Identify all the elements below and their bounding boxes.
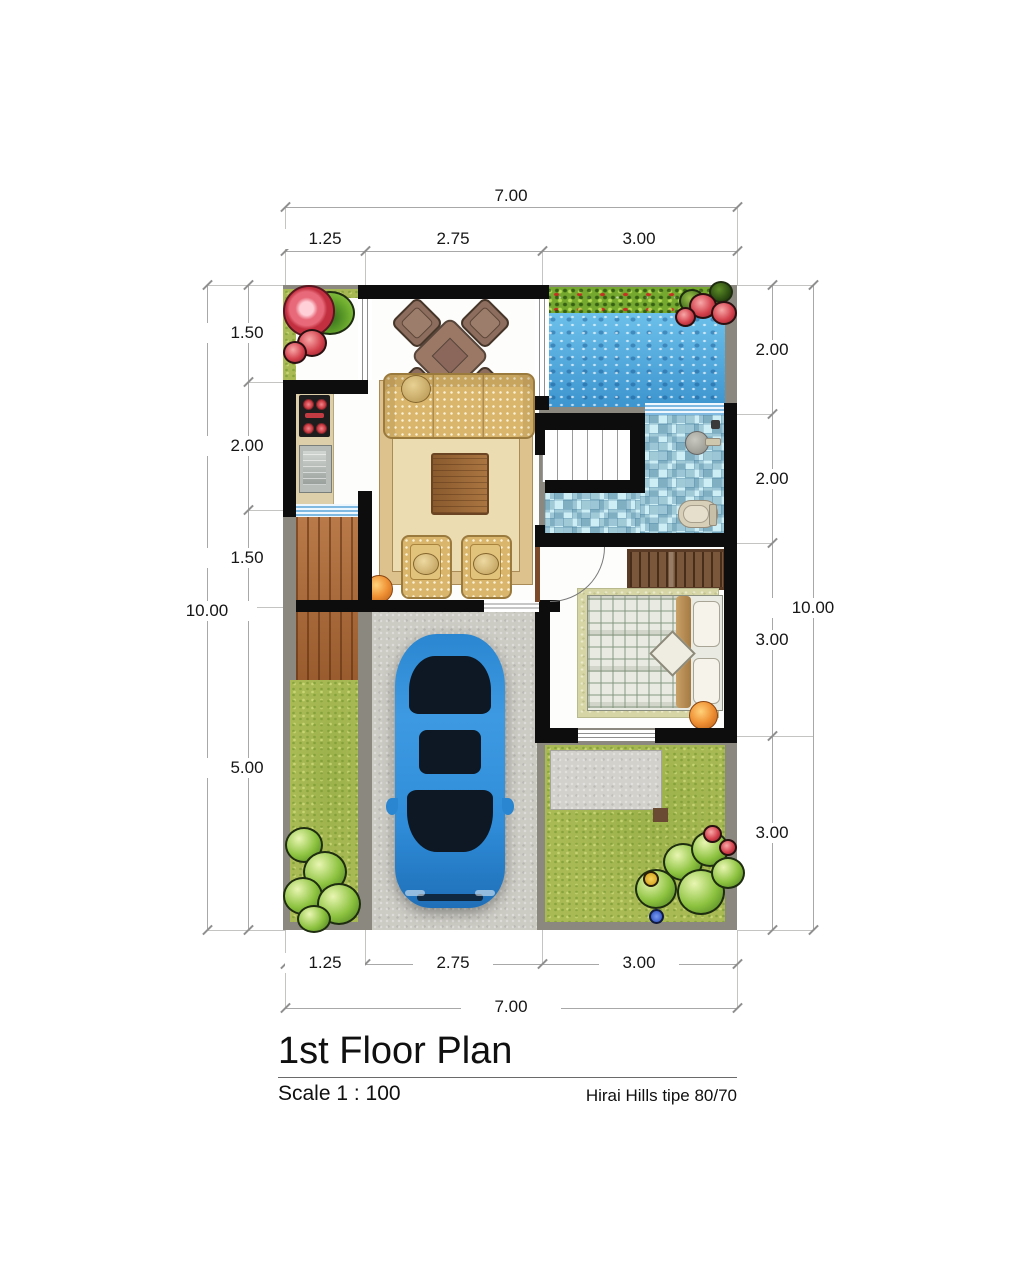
wall bbox=[535, 285, 549, 299]
stepping-stone bbox=[653, 808, 668, 822]
coffee-table bbox=[431, 453, 489, 515]
car bbox=[395, 634, 505, 908]
back-garden-shrubs bbox=[633, 823, 737, 925]
dim-left-seg: 1.50 bbox=[207, 323, 287, 343]
wall bbox=[535, 396, 549, 410]
car-headlight bbox=[405, 890, 425, 896]
wood-deck bbox=[296, 515, 358, 680]
entry-door bbox=[484, 600, 539, 612]
title-divider bbox=[278, 1077, 737, 1078]
flower-icon bbox=[675, 307, 696, 327]
burner-icon bbox=[303, 423, 314, 434]
car-windshield bbox=[407, 790, 493, 852]
armchair bbox=[401, 535, 452, 599]
page-title: 1st Floor Plan bbox=[278, 1030, 512, 1073]
window bbox=[358, 299, 372, 380]
window bbox=[645, 403, 724, 415]
wall bbox=[545, 480, 645, 493]
flower-icon bbox=[703, 825, 722, 843]
stove bbox=[299, 395, 330, 437]
pool-flower-cluster bbox=[675, 285, 737, 337]
car-mirror bbox=[502, 798, 514, 815]
stove-bar bbox=[305, 413, 324, 418]
dim-right-seg: 2.00 bbox=[732, 340, 812, 360]
dim-top-seg: 3.00 bbox=[599, 229, 679, 249]
toilet bbox=[678, 500, 718, 528]
burner-icon bbox=[316, 423, 327, 434]
wall bbox=[535, 525, 545, 547]
flower-icon bbox=[643, 871, 659, 887]
side-garden-shrubs bbox=[283, 825, 368, 930]
window bbox=[296, 504, 358, 517]
wall bbox=[535, 413, 645, 430]
flower-icon bbox=[283, 341, 307, 364]
wall bbox=[545, 533, 724, 547]
wall bbox=[535, 600, 550, 743]
pouf bbox=[689, 701, 718, 730]
burner-icon bbox=[303, 399, 314, 410]
dim-left-seg: 2.00 bbox=[207, 436, 287, 456]
armchair bbox=[461, 535, 512, 599]
car-rear-window bbox=[409, 656, 491, 714]
shrub-icon bbox=[297, 905, 331, 933]
bathroom-corridor bbox=[545, 491, 640, 533]
burner-icon bbox=[316, 399, 327, 410]
pillow bbox=[693, 658, 720, 704]
wall bbox=[535, 413, 545, 455]
dim-bottom-seg: 2.75 bbox=[413, 953, 493, 973]
shrub-icon bbox=[711, 857, 745, 889]
car-grille bbox=[417, 894, 483, 901]
dim-right-seg: 2.00 bbox=[732, 469, 812, 489]
window bbox=[578, 730, 655, 741]
wall bbox=[358, 491, 372, 612]
floor-plan bbox=[283, 285, 737, 930]
dim-top-seg: 2.75 bbox=[413, 229, 493, 249]
dim-left-total: 10.00 bbox=[157, 601, 257, 621]
dim-right-seg: 3.00 bbox=[732, 630, 812, 650]
wall bbox=[372, 600, 484, 612]
front-garden-plant bbox=[283, 285, 358, 380]
shower-handle bbox=[705, 438, 721, 446]
dim-right-seg: 3.00 bbox=[732, 823, 812, 843]
flower-icon bbox=[649, 909, 664, 924]
floor-drain bbox=[711, 420, 720, 429]
wardrobe bbox=[627, 549, 726, 590]
dim-bottom-total: 7.00 bbox=[461, 997, 561, 1017]
scale-label: Scale 1 : 100 bbox=[278, 1082, 401, 1106]
car-sunroof bbox=[419, 730, 481, 774]
sofa-cushion bbox=[401, 375, 431, 403]
patio-slab bbox=[550, 750, 662, 810]
dim-bottom-seg: 3.00 bbox=[599, 953, 679, 973]
wall bbox=[358, 285, 545, 299]
wall bbox=[724, 403, 737, 743]
dim-left-seg: 5.00 bbox=[207, 758, 287, 778]
dim-top-total: 7.00 bbox=[461, 186, 561, 206]
stairs bbox=[542, 428, 630, 482]
pillow bbox=[693, 601, 720, 647]
wall bbox=[283, 380, 296, 517]
car-mirror bbox=[386, 798, 398, 815]
wall bbox=[655, 728, 737, 743]
bed bbox=[587, 595, 723, 711]
flower-icon bbox=[719, 839, 737, 856]
car-headlight bbox=[475, 890, 495, 896]
floor-plan-page: 7.00 1.25 2.75 3.00 1.25 2.75 3.00 7.00 … bbox=[0, 0, 1024, 1280]
dim-top-seg: 1.25 bbox=[285, 229, 365, 249]
wall bbox=[535, 728, 578, 743]
door-leaf bbox=[535, 547, 540, 602]
flower-icon bbox=[711, 301, 737, 325]
project-label: Hirai Hills tipe 80/70 bbox=[437, 1086, 737, 1106]
kitchen-sink bbox=[299, 445, 332, 493]
dim-left-seg: 1.50 bbox=[207, 548, 287, 568]
wall bbox=[296, 600, 372, 612]
dim-right-total: 10.00 bbox=[763, 598, 863, 618]
dim-bottom-seg: 1.25 bbox=[285, 953, 365, 973]
window bbox=[535, 299, 549, 396]
